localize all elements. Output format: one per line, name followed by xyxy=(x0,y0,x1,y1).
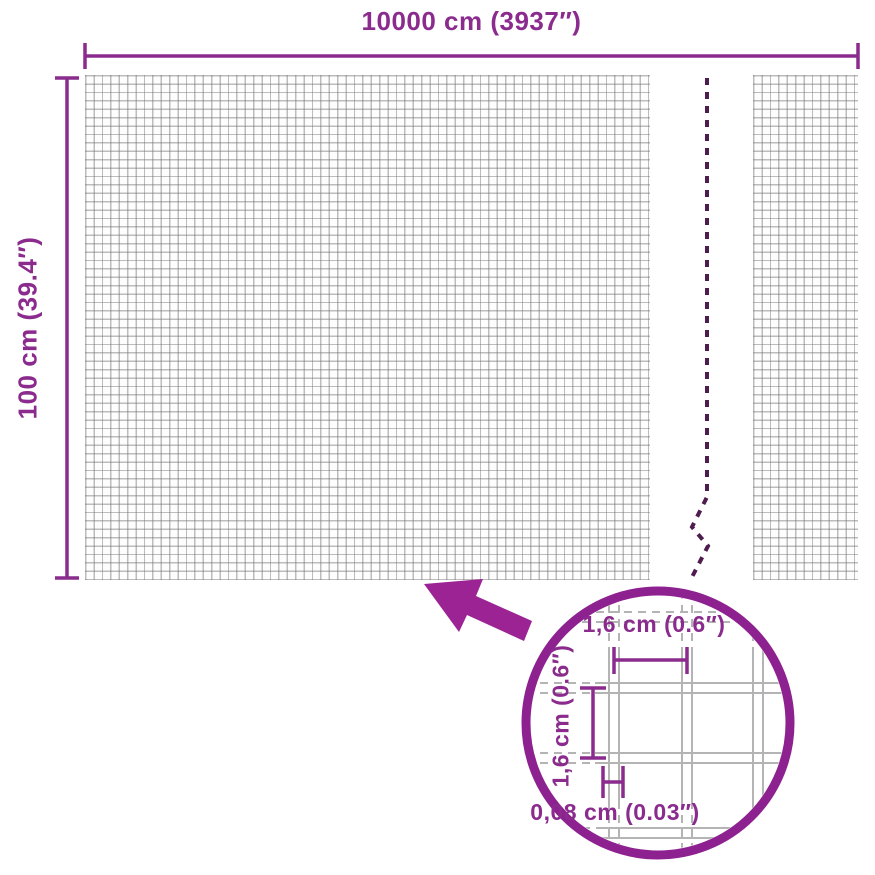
width-dimension-line xyxy=(85,43,858,69)
total-width-label: 10000 cm (3937″) xyxy=(85,6,858,37)
zoom-arrow-icon xyxy=(424,579,532,641)
mesh-height-label: 1,6 cm (0.6″) xyxy=(548,645,575,788)
diagram-graphics xyxy=(0,0,875,875)
mesh-width-label: 1,6 cm (0.6″) xyxy=(554,611,754,638)
break-line xyxy=(690,78,708,581)
total-height-label: 100 cm (39.4″) xyxy=(13,237,44,420)
wire-thickness-label: 0,08 cm (0.03″) xyxy=(515,799,715,826)
mesh-roll-dimension-diagram: 10000 cm (3937″) 100 cm (39.4″) 1,6 cm (… xyxy=(0,0,875,875)
height-dimension-line xyxy=(55,78,79,578)
